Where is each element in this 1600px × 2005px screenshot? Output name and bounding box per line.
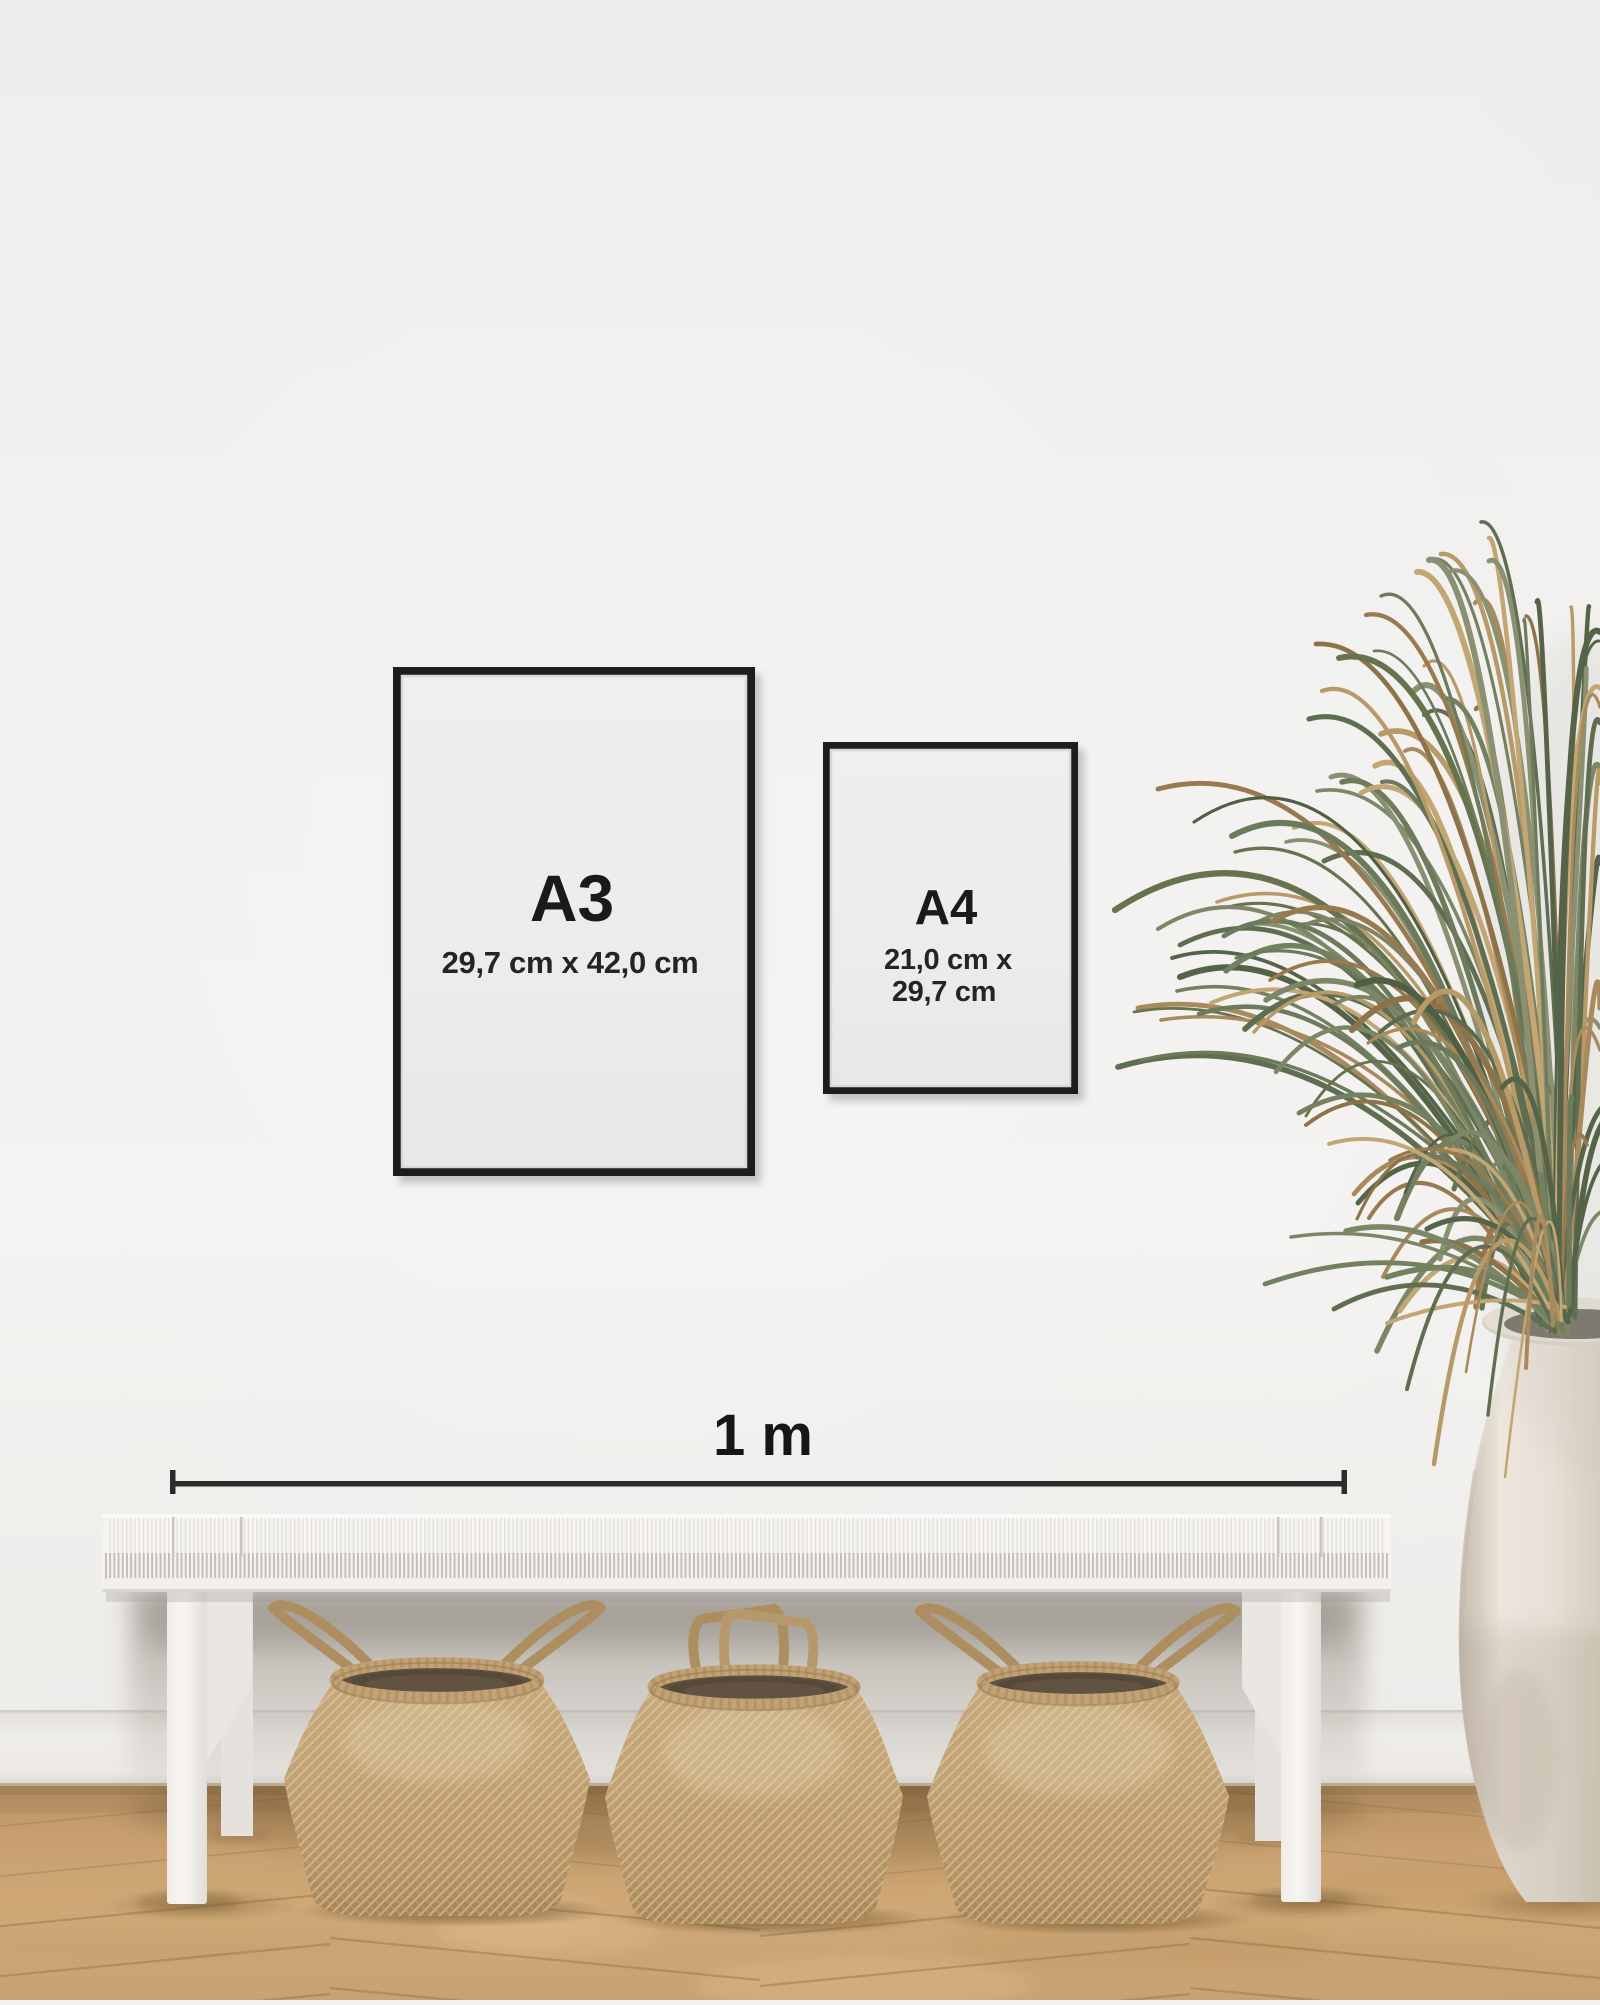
- svg-text:29,7 cm x 42,0 cm: 29,7 cm x 42,0 cm: [442, 945, 699, 980]
- svg-text:A3: A3: [530, 861, 614, 935]
- svg-text:1 m: 1 m: [713, 1403, 813, 1468]
- svg-text:21,0 cm x: 21,0 cm x: [884, 944, 1012, 976]
- svg-text:29,7 cm: 29,7 cm: [892, 976, 996, 1008]
- svg-text:A4: A4: [915, 881, 978, 935]
